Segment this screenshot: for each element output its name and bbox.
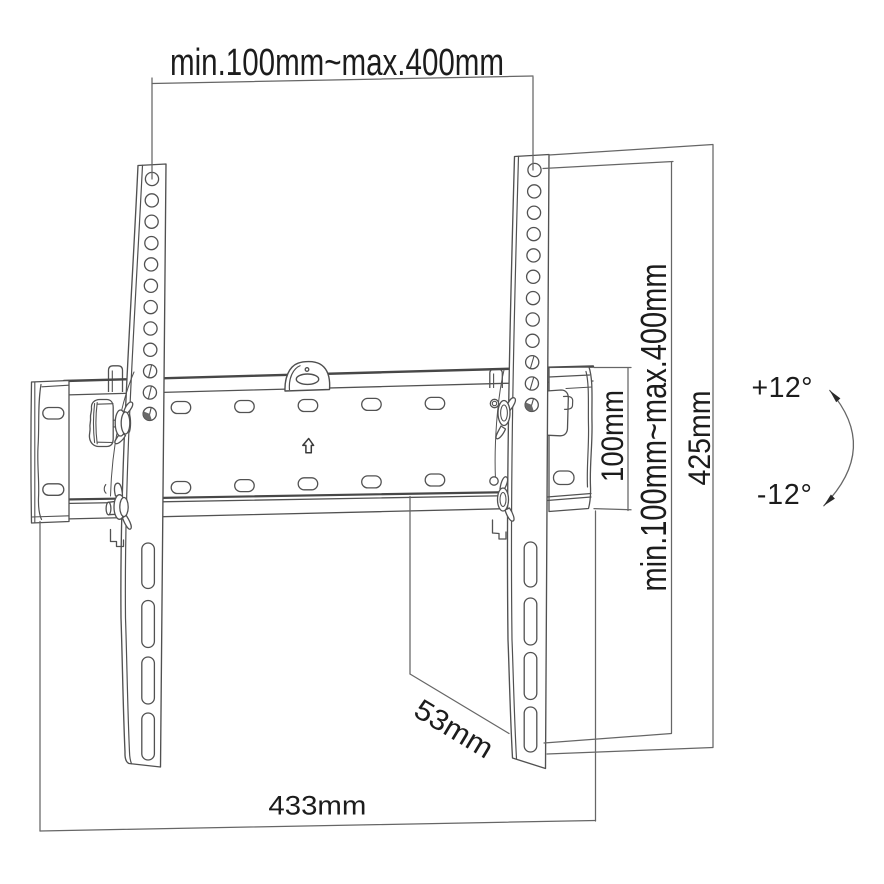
svg-text:425mm: 425mm xyxy=(681,391,717,486)
svg-text:+12°: +12° xyxy=(752,372,813,404)
svg-text:100mm: 100mm xyxy=(594,390,630,482)
svg-text:433mm: 433mm xyxy=(268,791,366,821)
svg-text:-12°: -12° xyxy=(757,479,812,511)
svg-text:min.100mm~max.400mm: min.100mm~max.400mm xyxy=(170,42,504,84)
svg-text:min.100mm~max.400mm: min.100mm~max.400mm xyxy=(633,264,674,592)
